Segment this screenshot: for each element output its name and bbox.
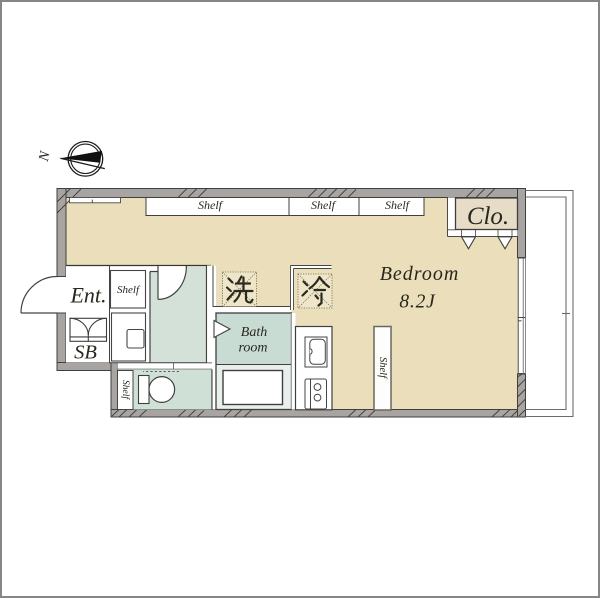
svg-text:8.2J: 8.2J	[399, 292, 436, 313]
svg-text:SB: SB	[74, 342, 97, 364]
svg-text:Shelf: Shelf	[198, 198, 224, 212]
svg-text:Clo.: Clo.	[467, 203, 509, 230]
svg-text:Shelf: Shelf	[120, 380, 131, 400]
svg-text:Shelf: Shelf	[311, 198, 337, 212]
svg-text:room: room	[238, 341, 267, 356]
svg-text:Ent.: Ent.	[69, 283, 106, 308]
svg-text:Bath: Bath	[241, 325, 267, 340]
svg-text:Shelf: Shelf	[377, 357, 388, 380]
svg-text:Shelf: Shelf	[385, 198, 411, 212]
svg-text:Shelf: Shelf	[117, 284, 141, 296]
svg-text:Bedroom: Bedroom	[380, 263, 460, 285]
